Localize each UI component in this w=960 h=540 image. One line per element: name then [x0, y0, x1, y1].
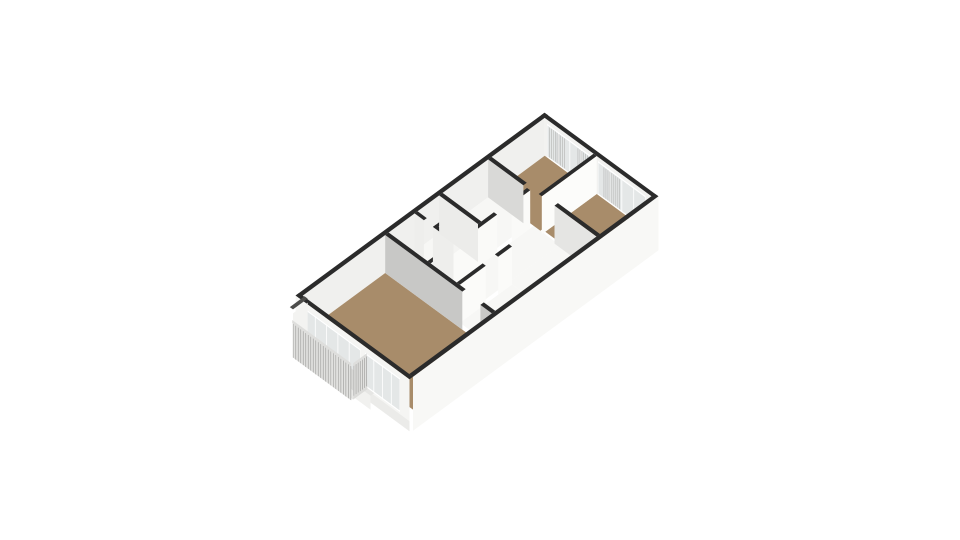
balcony-side-slat [356, 364, 357, 395]
sw-window-mullion [373, 359, 374, 394]
ne-wall-stripe [557, 133, 558, 163]
balcony-slat [336, 355, 337, 390]
balcony-side-slat [358, 362, 359, 393]
balcony-slat [308, 335, 309, 370]
balcony-side-slat [354, 365, 355, 396]
ne-window-mullion [569, 140, 570, 175]
balcony-slat [338, 357, 339, 392]
balcony-slat [343, 360, 344, 395]
ne-wall-stripe [616, 176, 617, 206]
balcony-slat [305, 333, 306, 368]
balcony-slat [318, 342, 319, 377]
balcony-slat [331, 351, 332, 386]
balcony-side-slat [366, 356, 367, 387]
balcony-slat [333, 353, 334, 388]
sw-window-mullion [391, 372, 392, 407]
ne-wall-stripe [612, 173, 613, 203]
balcony-slat [300, 329, 301, 364]
sw-window-mullion [382, 365, 383, 400]
balcony-side-slat [364, 358, 365, 389]
balcony-slat [346, 362, 347, 397]
ne-wall-stripe [618, 177, 619, 207]
floorplan-figure [0, 0, 960, 540]
balcony-slat [315, 340, 316, 375]
balcony-slat [348, 364, 349, 399]
balcony-slat [310, 336, 311, 371]
balcony-side-slat [360, 361, 361, 392]
ne-wall-stripe [562, 137, 563, 167]
ne-wall-stripe [604, 167, 605, 197]
balcony-slat [328, 349, 329, 384]
ne-wall-stripe [559, 134, 560, 164]
ne-wall-stripe [608, 170, 609, 200]
ne-wall-stripe [551, 129, 552, 159]
bathroom-divider-wall-face [415, 213, 424, 258]
balcony-slat [323, 346, 324, 381]
ne-wall-stripe [564, 138, 565, 168]
balcony-slat [313, 338, 314, 373]
floorplan-3d-render [0, 0, 960, 540]
ne-wall-stripe [561, 135, 562, 165]
balcony-slat [303, 331, 304, 366]
ne-wall-stripe [550, 127, 551, 157]
balcony-slat [320, 344, 321, 379]
ne-wall-stripe [614, 174, 615, 204]
ne-wall-stripe [606, 169, 607, 199]
ne-window-mullion [621, 178, 622, 213]
balcony-side-slat [362, 359, 363, 390]
balcony-slat [298, 327, 299, 362]
balcony-slat [351, 366, 352, 400]
balcony-slat [293, 324, 294, 359]
ne-wall-stripe [555, 131, 556, 161]
floorplan-page [0, 0, 960, 540]
ne-wall-stripe [620, 179, 621, 209]
balcony-slat [325, 347, 326, 382]
balcony-slat [341, 359, 342, 394]
balcony-slat [295, 325, 296, 360]
